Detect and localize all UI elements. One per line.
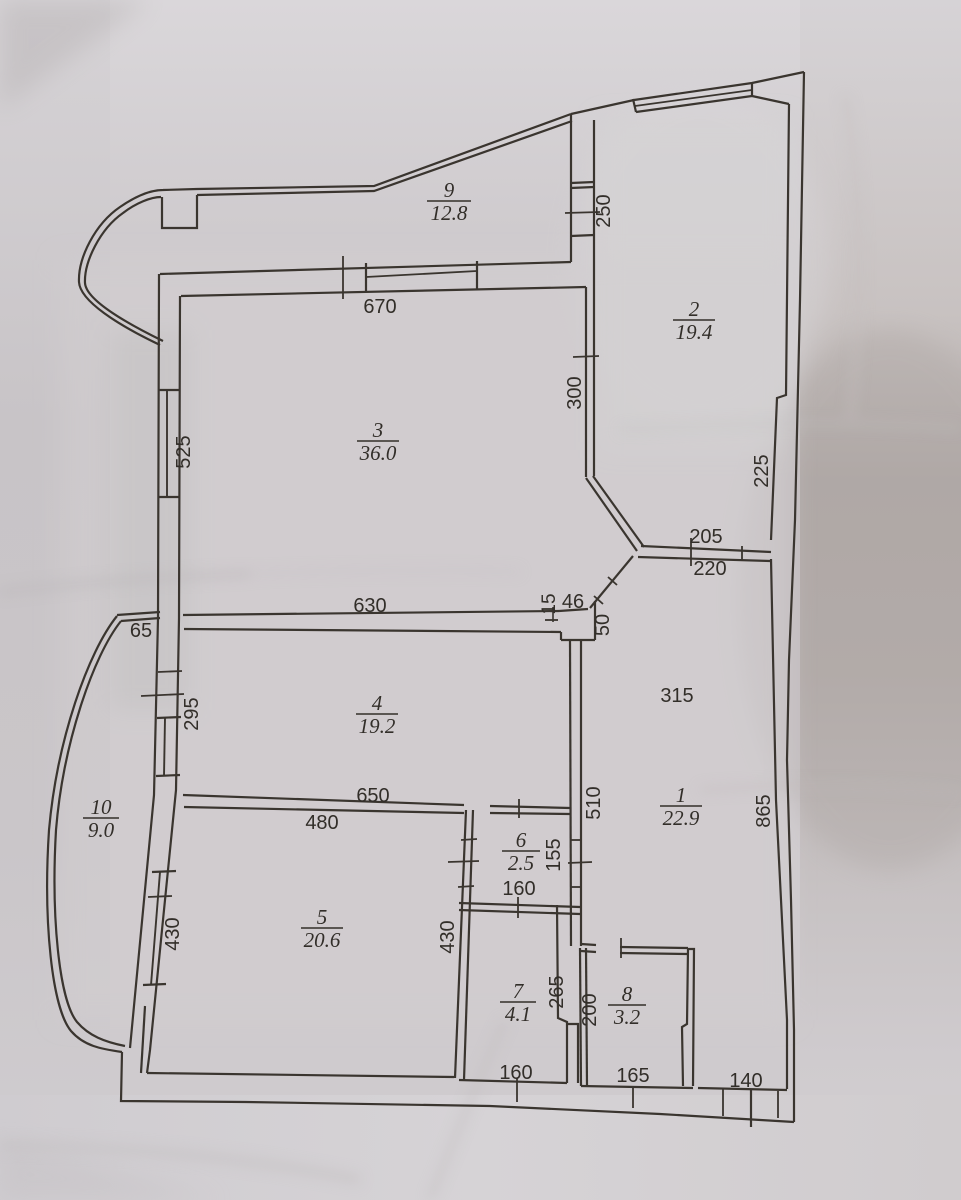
svg-text:50: 50 — [592, 614, 614, 636]
svg-text:19.2: 19.2 — [359, 714, 396, 738]
svg-text:1: 1 — [676, 783, 687, 807]
svg-text:8: 8 — [622, 982, 633, 1006]
svg-text:265: 265 — [546, 975, 568, 1008]
svg-text:300: 300 — [564, 376, 586, 409]
svg-text:36.0: 36.0 — [359, 441, 397, 465]
svg-text:22.9: 22.9 — [663, 806, 700, 830]
svg-text:20.6: 20.6 — [304, 928, 341, 952]
svg-text:510: 510 — [583, 786, 605, 819]
svg-text:160: 160 — [499, 1062, 532, 1084]
svg-text:650: 650 — [356, 785, 389, 807]
svg-text:4: 4 — [372, 691, 383, 715]
svg-text:630: 630 — [353, 595, 386, 617]
svg-text:4.1: 4.1 — [505, 1002, 531, 1026]
svg-text:9: 9 — [444, 178, 455, 202]
svg-text:10: 10 — [91, 795, 113, 819]
svg-text:3: 3 — [372, 418, 384, 442]
svg-text:7: 7 — [513, 979, 525, 1003]
svg-text:2.5: 2.5 — [508, 851, 534, 875]
svg-text:9.0: 9.0 — [88, 818, 115, 842]
svg-text:2: 2 — [689, 297, 700, 321]
svg-text:295: 295 — [181, 697, 203, 730]
svg-text:65: 65 — [130, 620, 152, 642]
svg-text:160: 160 — [502, 878, 535, 900]
svg-text:480: 480 — [305, 812, 338, 834]
svg-text:315: 315 — [660, 685, 693, 707]
svg-text:865: 865 — [753, 794, 775, 827]
svg-text:220: 220 — [693, 558, 726, 580]
svg-text:6: 6 — [516, 828, 527, 852]
svg-text:12.8: 12.8 — [431, 201, 468, 225]
svg-text:525: 525 — [173, 435, 195, 468]
svg-text:250: 250 — [593, 194, 615, 227]
svg-text:140: 140 — [729, 1070, 762, 1092]
svg-text:19.4: 19.4 — [676, 320, 713, 344]
svg-text:225: 225 — [751, 454, 773, 487]
svg-text:205: 205 — [689, 526, 722, 548]
svg-text:670: 670 — [363, 296, 396, 318]
svg-text:3.2: 3.2 — [613, 1005, 641, 1029]
svg-text:155: 155 — [543, 838, 565, 871]
svg-text:46: 46 — [562, 591, 584, 613]
svg-text:430: 430 — [437, 920, 459, 953]
svg-text:5: 5 — [317, 905, 328, 929]
svg-text:200: 200 — [579, 993, 601, 1026]
svg-text:165: 165 — [616, 1065, 649, 1087]
svg-text:15: 15 — [539, 593, 560, 614]
svg-text:430: 430 — [162, 917, 184, 950]
